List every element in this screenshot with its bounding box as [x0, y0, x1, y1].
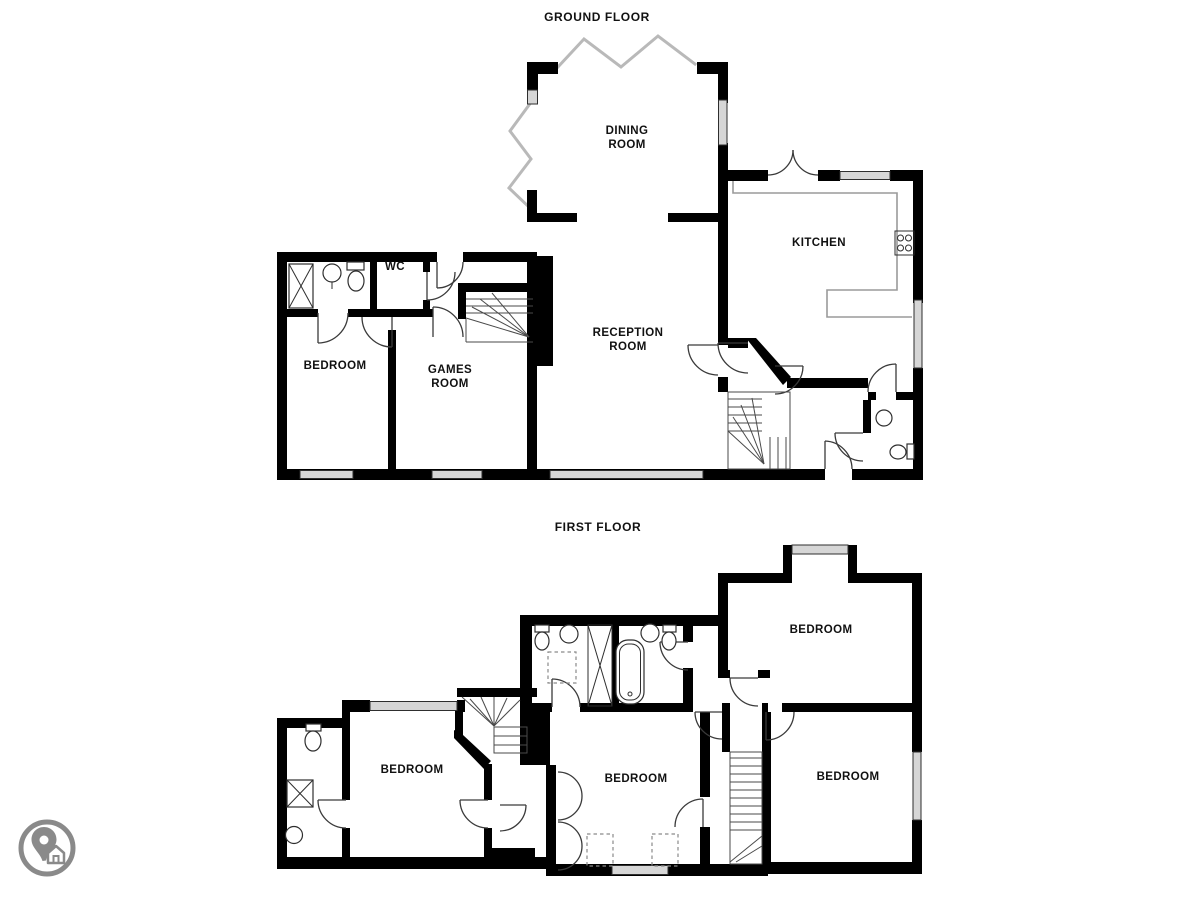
sink-icon [323, 264, 341, 282]
room-label-dining: DINING ROOM [606, 125, 649, 153]
first-narrow-ensuite-fixtures [286, 724, 322, 844]
first-floor-plan [277, 545, 922, 876]
room-label-bedroom-ground: BEDROOM [304, 360, 367, 374]
shower-tray [548, 652, 576, 683]
room-label-bedroom-middle: BEDROOM [605, 773, 668, 787]
toilet-icon [535, 625, 549, 632]
toilet-icon [347, 262, 364, 270]
ground-cloakroom-fixtures [876, 410, 914, 459]
toilet-icon [306, 724, 321, 731]
agency-logo [21, 822, 73, 874]
ground-floor-plan [277, 36, 923, 480]
hob-icon [895, 231, 914, 255]
floorplan-page: GROUND FLOOR FIRST FLOOR DINING ROOM KIT… [0, 0, 1200, 900]
middle-bedroom-closets [587, 834, 678, 866]
first-family-bathroom-fixtures [616, 624, 676, 704]
ground-floor-title: GROUND FLOOR [544, 10, 650, 24]
glazed-bay-zigzag [509, 36, 695, 208]
ground-ensuite-fixtures [289, 262, 364, 308]
room-label-reception: RECEPTION ROOM [593, 327, 664, 355]
sink-icon [876, 410, 892, 426]
room-label-bedroom-bottom-right: BEDROOM [817, 771, 880, 785]
sink-icon [286, 827, 303, 844]
ground-stairs [466, 293, 790, 469]
sink-icon [641, 624, 659, 642]
map-pin-home-icon [32, 827, 65, 863]
room-label-games: GAMES ROOM [428, 364, 472, 392]
ground-walls [277, 62, 923, 480]
back-door-gap [825, 469, 852, 480]
first-floor-title: FIRST FLOOR [555, 520, 642, 534]
first-left-bathroom-fixtures [535, 625, 612, 706]
toilet-icon [663, 625, 676, 632]
room-label-bedroom-left: BEDROOM [381, 764, 444, 778]
floorplan-drawing [0, 0, 1200, 900]
room-label-kitchen: KITCHEN [792, 237, 846, 251]
room-label-wc: WC [385, 261, 405, 275]
sink-icon [560, 625, 578, 643]
toilet-icon [890, 445, 906, 459]
room-label-bedroom-top-right: BEDROOM [790, 624, 853, 638]
